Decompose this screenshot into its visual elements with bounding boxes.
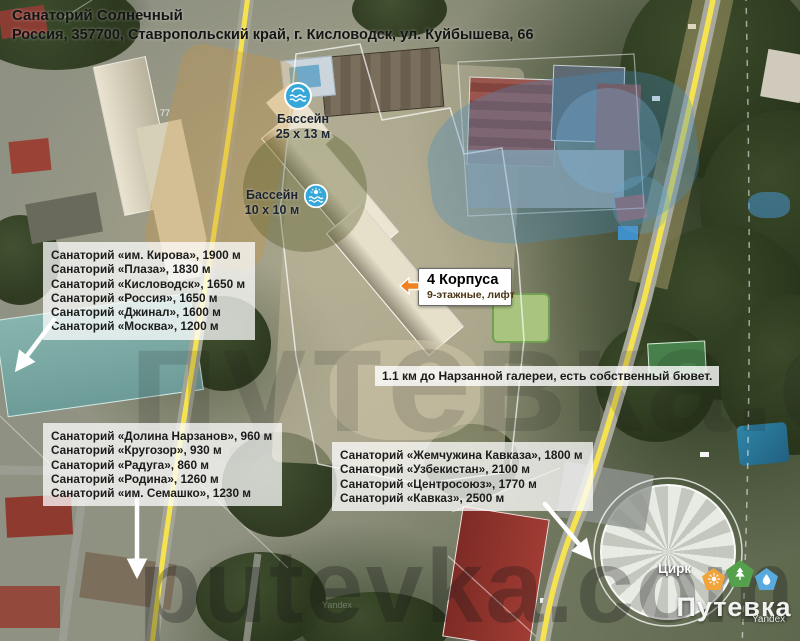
list-item: Санаторий «им. Семашко», 1230 м (51, 486, 272, 500)
map-attribution: Yandex (752, 614, 785, 625)
pool-small-name: Бассейн (228, 188, 316, 203)
highlight-blob-blue (748, 192, 790, 218)
list-item: Санаторий «Родина», 1260 м (51, 472, 272, 486)
callout-arrow-icon (399, 276, 421, 296)
header: Санаторий Солнечный Россия, 357700, Став… (12, 7, 534, 43)
note-box: 1.1 км до Нарзанной галереи, есть собств… (375, 366, 719, 386)
address: Россия, 357700, Ставропольский край, г. … (12, 27, 534, 43)
list-item: Санаторий «Долина Нарзанов», 960 м (51, 429, 272, 443)
list-item: Санаторий «Плаза», 1830 м (51, 262, 245, 276)
list-item: Санаторий «Жемчужина Кавказа», 1800 м (340, 448, 583, 462)
highlight-circle-blue (612, 176, 670, 234)
buildings-callout: 4 Корпуса 9-этажные, лифт (418, 268, 512, 306)
pool-large-name: Бассейн (258, 112, 348, 127)
watermark-bottom: putevka.com (138, 528, 796, 641)
map-screenshot: путевка.com putevka.com Yandex Yandex Са… (0, 0, 800, 641)
list-item: Санаторий «Кисловодск», 1650 м (51, 277, 245, 291)
list-item: Санаторий «Радуга», 860 м (51, 458, 272, 472)
pool-large-label: Бассейн 25 х 13 м (258, 112, 348, 142)
list-item: Санаторий «Кругозор», 930 м (51, 443, 272, 457)
sanatorium-list-south: Санаторий «Жемчужина Кавказа», 1800 м Са… (332, 442, 593, 511)
list-item: Санаторий «Узбекистан», 2100 м (340, 462, 583, 476)
list-item: Санаторий «им. Кирова», 1900 м (51, 248, 245, 262)
list-item: Санаторий «Центросоюз», 1770 м (340, 477, 583, 491)
pool-small-label: Бассейн 10 х 10 м (228, 188, 316, 218)
house-number-label: 77 (160, 108, 170, 118)
list-item: Санаторий «Джинал», 1600 м (51, 305, 245, 319)
callout-title: 4 Корпуса (427, 272, 505, 288)
list-item: Санаторий «Москва», 1200 м (51, 319, 245, 333)
pool-small-size: 10 х 10 м (228, 203, 316, 218)
map-attribution-faint: Yandex (322, 600, 352, 610)
list-item: Санаторий «Кавказ», 2500 м (340, 491, 583, 505)
page-title: Санаторий Солнечный (12, 7, 534, 24)
sanatorium-list-west: Санаторий «Долина Нарзанов», 960 м Санат… (43, 423, 282, 506)
callout-subtitle: 9-этажные, лифт (427, 289, 505, 301)
indoor-pool-icon (283, 81, 313, 111)
list-item: Санаторий «Россия», 1650 м (51, 291, 245, 305)
circus-label: Цирк (658, 561, 691, 576)
sanatorium-list-north: Санаторий «им. Кирова», 1900 м Санаторий… (43, 242, 255, 340)
pool-large-size: 25 х 13 м (258, 127, 348, 142)
